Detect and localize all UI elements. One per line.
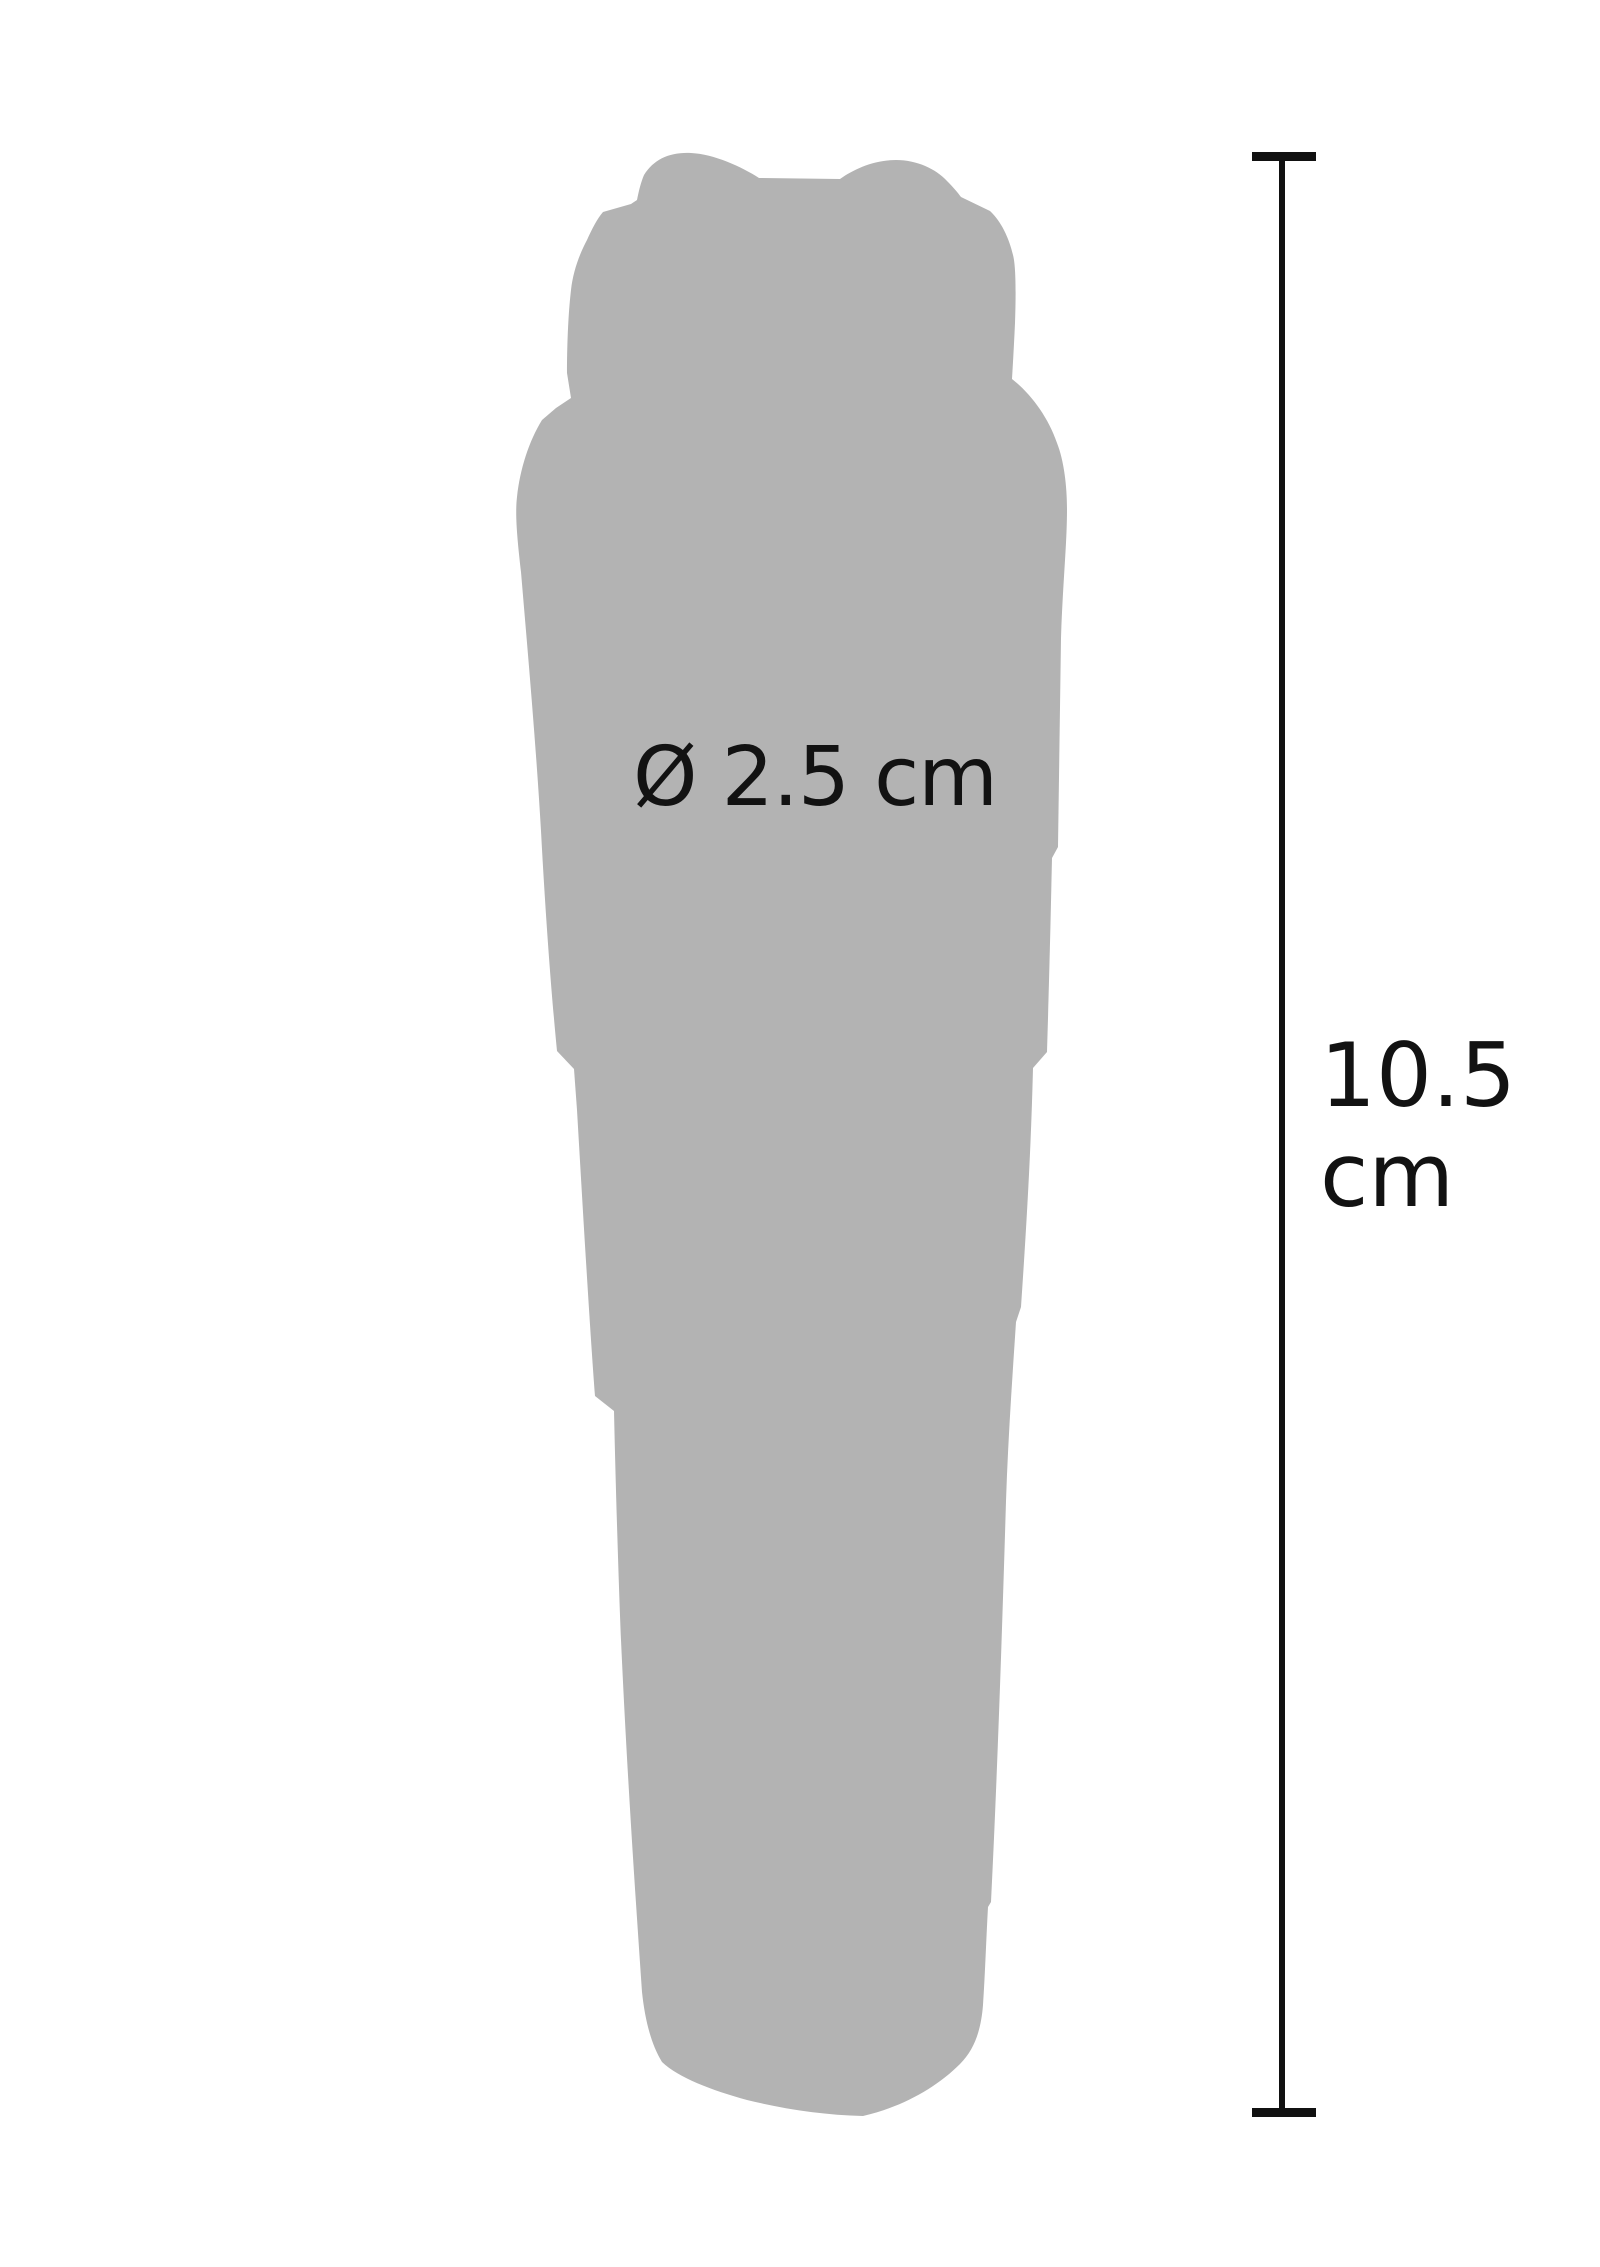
height-dimension-line xyxy=(1279,156,1285,2110)
dimension-bottom-cap xyxy=(1252,2108,1316,2117)
height-value: 10.5 xyxy=(1320,1026,1516,1126)
diameter-label: Ø 2.5 cm xyxy=(633,737,997,819)
height-unit: cm xyxy=(1320,1126,1516,1226)
height-label: 10.5 cm xyxy=(1320,1026,1516,1226)
product-silhouette-shape xyxy=(516,153,1067,2116)
dimension-diagram: Ø 2.5 cm 10.5 cm xyxy=(0,0,1600,2267)
